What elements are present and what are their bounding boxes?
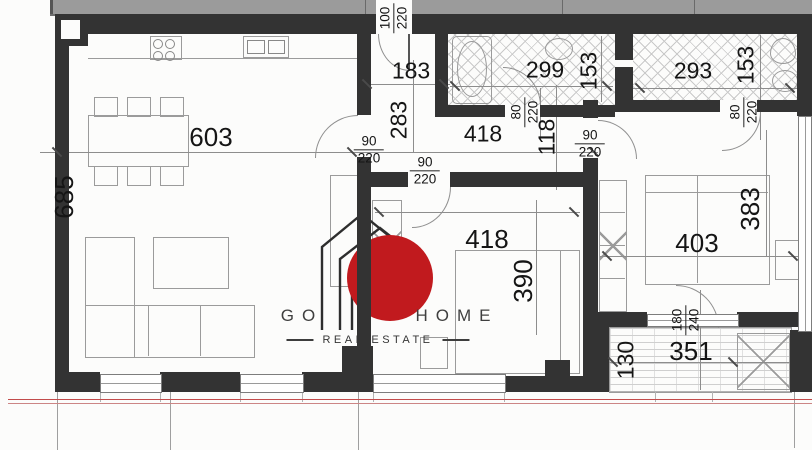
dimension-line: [766, 130, 767, 256]
door-dim-height: 220: [527, 101, 541, 124]
door-dim-width: 80: [728, 104, 742, 119]
balcony-wall: [598, 312, 647, 327]
section-line-red: [8, 399, 812, 400]
section-line-red: [8, 403, 812, 404]
dim-living-width: 603: [189, 124, 232, 150]
wall-pier: [302, 372, 345, 392]
bathtub-basin: [457, 41, 487, 97]
logo-word-home: HOME: [416, 306, 499, 326]
dim-bedroom2-height: 383: [737, 187, 763, 230]
logo-word-go: GO: [281, 306, 323, 326]
sill-mullion: [712, 391, 713, 402]
corner-column-shaft: [61, 20, 80, 39]
exterior-wall-right: [797, 14, 812, 116]
burner-icon: [153, 39, 163, 49]
door-dim-balcony: 180240: [670, 309, 701, 332]
door-dim-width: 100: [378, 7, 392, 30]
door-dim-height: 220: [579, 146, 602, 160]
sink-basin: [268, 40, 286, 54]
sofa-seat-section: [85, 305, 255, 358]
door-dim-width: 90: [361, 134, 376, 148]
bath-divider-wall: [615, 34, 633, 60]
dim-bath1-height: 153: [578, 52, 601, 90]
wardrobe: [599, 180, 627, 312]
door-dim-bath1: 80220: [509, 101, 540, 124]
tagline-dash-icon: [443, 339, 470, 341]
chair: [94, 166, 118, 186]
dim-balcony-width: 351: [669, 338, 712, 364]
kitchen-sink: [243, 36, 289, 58]
chair: [160, 166, 184, 186]
dim-bath2-height: 153: [735, 46, 758, 84]
tagline-text: REAL ESTATE: [322, 334, 433, 346]
dim-living-height: 685: [51, 175, 77, 218]
sill-mullion: [655, 391, 656, 402]
extension-line: [365, 0, 366, 14]
kitchen-counter-line: [88, 58, 357, 59]
stove: [150, 36, 182, 60]
dim-bath2-width: 293: [674, 60, 712, 83]
dimension-line: [633, 88, 797, 89]
door-dim-height: 220: [414, 173, 437, 187]
balcony-wall: [737, 312, 805, 327]
extension-line: [358, 392, 359, 450]
door-dim-width: 80: [509, 104, 523, 119]
extension-line: [57, 392, 58, 450]
sink-basin: [247, 40, 265, 54]
door-dim-living: 90220: [358, 134, 381, 165]
door-dim-height: 220: [358, 152, 381, 166]
wall-end-block: [342, 346, 373, 392]
dim-bath1-width: 299: [526, 59, 564, 82]
wall-pier: [504, 376, 595, 392]
dim-hall-height: 283: [388, 101, 411, 139]
dim-balcony-height: 130: [615, 341, 638, 379]
exterior-wall-top: [55, 14, 376, 34]
balcony-side-wall: [595, 327, 609, 392]
dim-corridor-width: 418: [464, 123, 502, 146]
dimension-line: [760, 35, 761, 140]
sofa-cushion-line: [148, 305, 149, 356]
hall-bath1-wall: [435, 34, 448, 105]
door-dim-width: 180: [670, 309, 684, 332]
bath1-bottom-wall: [540, 105, 615, 117]
hall-living-wall: [357, 34, 371, 115]
door-dim-bath2: 80220: [728, 101, 759, 124]
door-dim-height: 220: [746, 101, 760, 124]
door-dim-bedroom2: 90220: [579, 128, 602, 159]
coffee-table: [153, 237, 229, 289]
floor-plan-canvas: GO HOME REAL ESTATE: [0, 0, 812, 450]
facade-window: [373, 374, 506, 393]
bed-headboard-line: [560, 250, 561, 372]
door-dim-bedroom1: 90220: [414, 155, 437, 186]
dim-corridor-height: 118: [536, 119, 559, 156]
facade-window: [240, 374, 304, 393]
wardrobe-shelf-line: [599, 278, 625, 279]
dining-table: [88, 115, 189, 167]
wall-pier: [69, 372, 100, 392]
extension-line: [562, 0, 563, 14]
chair: [94, 97, 118, 117]
toilet: [770, 38, 796, 64]
bedroom-divider-wall: [583, 100, 598, 118]
bathtub: [452, 36, 492, 104]
wardrobe-shelf-line: [599, 245, 625, 246]
extension-line: [794, 392, 795, 448]
burner-icon: [153, 51, 163, 61]
wall-pier: [545, 360, 570, 376]
tagline-dash-icon: [286, 339, 313, 341]
chair: [127, 166, 151, 186]
facade-window: [100, 374, 162, 393]
burner-icon: [165, 51, 175, 61]
wardrobe-shelf-line: [599, 212, 625, 213]
band-edge-line: [50, 0, 53, 14]
corner-column: [790, 330, 812, 392]
corridor-bottom-wall: [357, 172, 408, 187]
door-dim-entrance: 100220: [378, 7, 409, 30]
exterior-wall-top: [412, 14, 812, 34]
door-dim-width: 90: [417, 155, 432, 169]
logo-tagline: REAL ESTATE: [286, 334, 469, 346]
dim-bedroom1-width: 418: [465, 226, 508, 252]
chair: [127, 97, 151, 117]
dim-hall-width: 183: [392, 60, 430, 83]
corridor-bottom-wall: [450, 172, 598, 187]
door-dim-height: 220: [396, 7, 410, 30]
dim-bedroom2-width: 403: [675, 230, 718, 256]
door-swing-arc-bedroom2: [598, 120, 637, 159]
extension-line: [694, 0, 695, 14]
dim-bedroom1-height: 390: [510, 259, 536, 302]
door-dim-height: 240: [688, 309, 702, 332]
bedroom2-side-window: [798, 116, 812, 332]
sofa-cushion-line: [200, 305, 201, 356]
burner-icon: [165, 39, 175, 49]
chair: [160, 97, 184, 117]
extension-line: [170, 392, 171, 450]
bath1-bottom-wall: [435, 105, 505, 117]
door-dim-width: 90: [582, 128, 597, 142]
wall-pier: [160, 372, 240, 392]
bath2-bottom-wall: [615, 100, 720, 112]
